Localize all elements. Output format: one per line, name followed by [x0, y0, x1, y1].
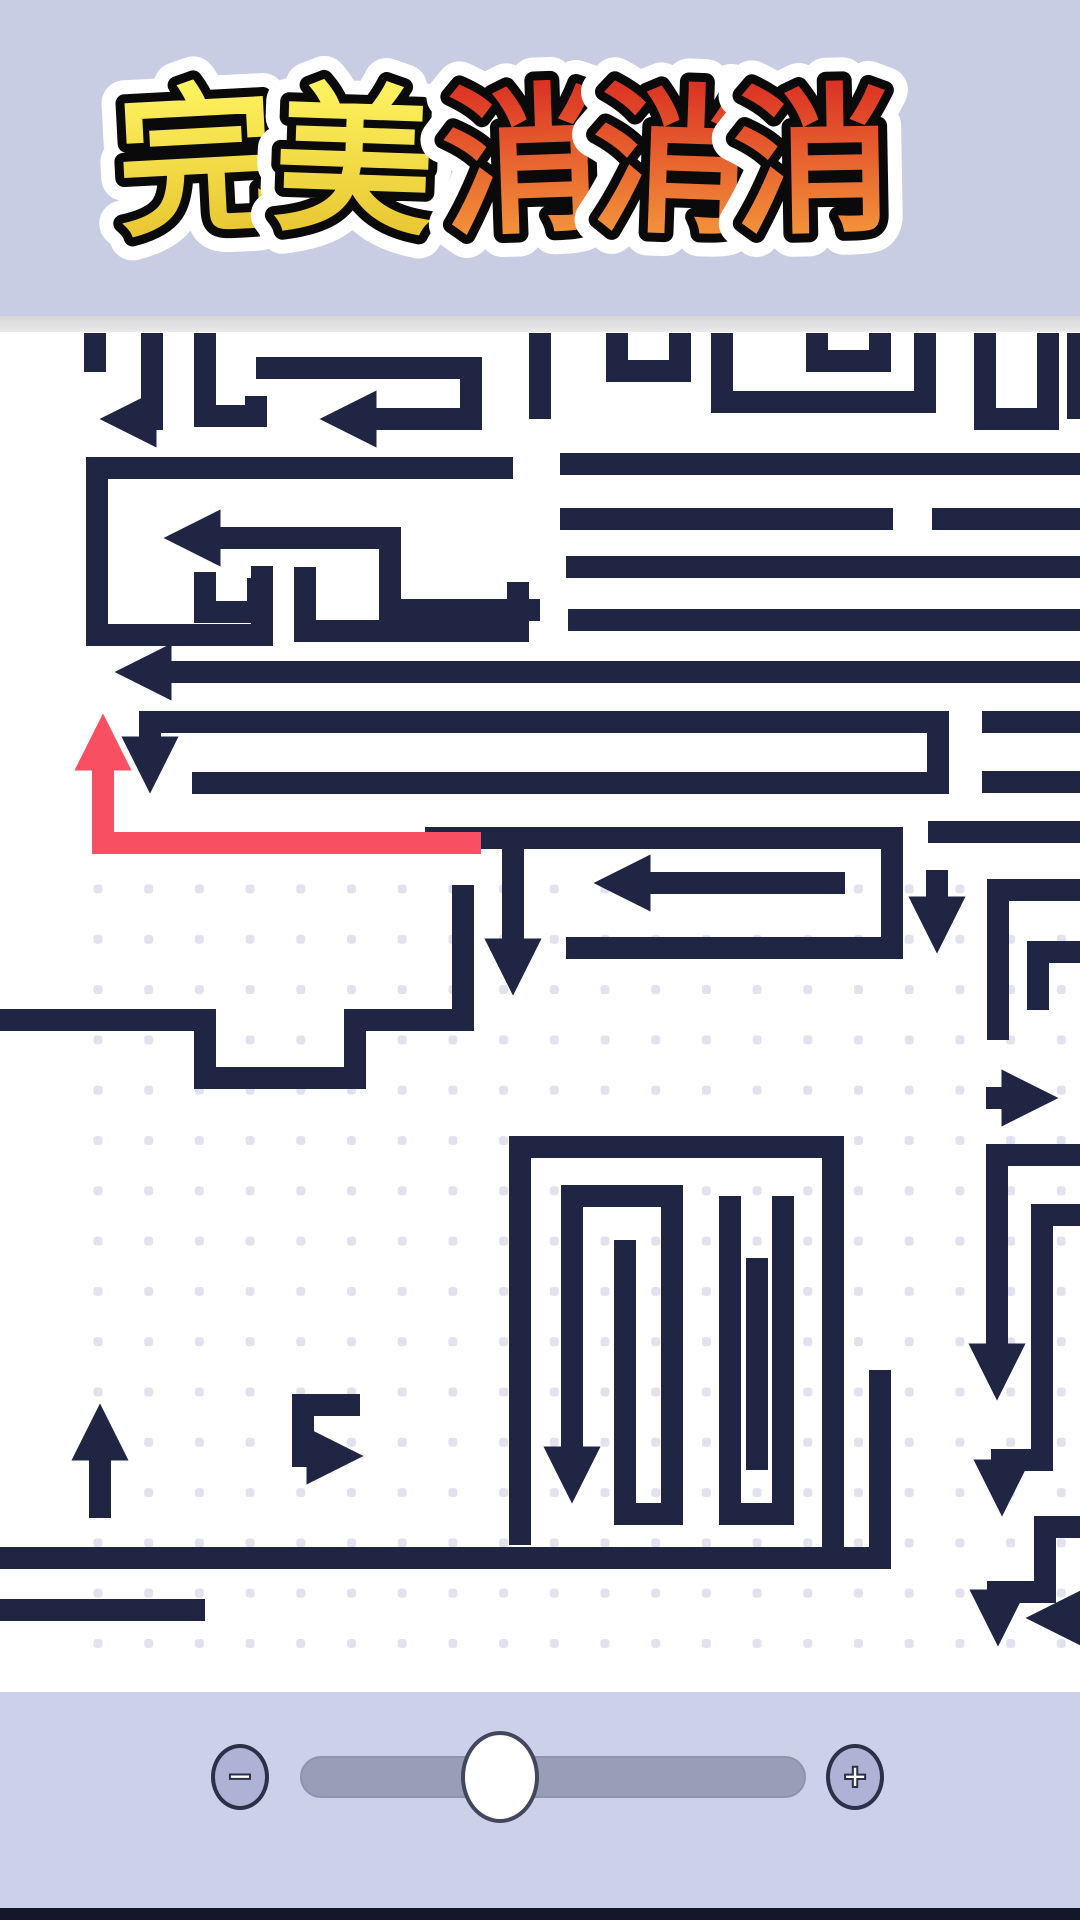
title-char: 完完	[112, 65, 282, 260]
svg-text:消: 消	[439, 66, 605, 258]
title-char: 消消	[589, 66, 755, 258]
game-screen: { "title": { "text": "完美消消消", "chars": […	[0, 0, 1080, 1920]
zoom-slider: − +	[0, 1692, 1080, 1920]
svg-text:美: 美	[271, 66, 437, 258]
svg-text:消: 消	[731, 68, 894, 258]
title-char: 美美	[271, 66, 437, 258]
zoom-in-button[interactable]: +	[826, 1744, 884, 1810]
app-title: 完完美美消消消消消消	[0, 0, 1080, 316]
title-char: 消消	[731, 68, 894, 258]
banner-board-divider	[0, 316, 1080, 332]
footer-strip	[0, 1908, 1080, 1920]
zoom-out-button[interactable]: −	[211, 1744, 269, 1810]
slider-knob[interactable]	[461, 1731, 539, 1823]
svg-text:完: 完	[112, 65, 282, 260]
bottom-bar: − +	[0, 1692, 1080, 1920]
svg-text:消: 消	[589, 66, 755, 258]
title-banner: 完完美美消消消消消消	[0, 0, 1080, 316]
slider-track[interactable]	[300, 1756, 806, 1798]
title-char: 消消	[439, 66, 605, 258]
maze-path[interactable]	[148, 333, 152, 419]
